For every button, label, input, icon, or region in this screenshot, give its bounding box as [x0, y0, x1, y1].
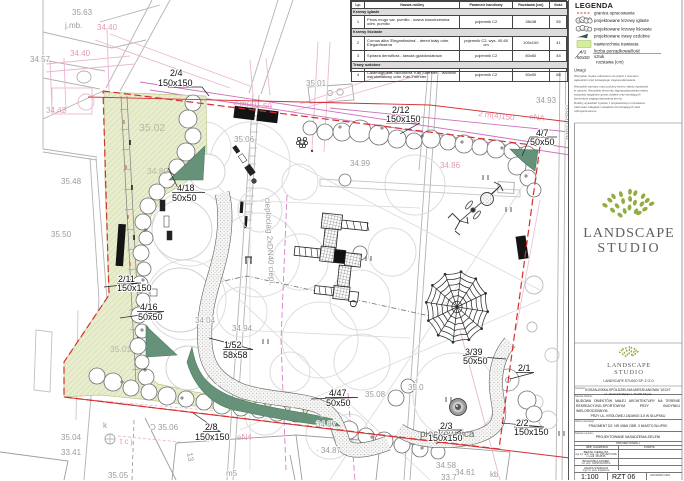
svg-text:33.41: 33.41 — [61, 448, 82, 457]
svg-text:2/4: 2/4 — [170, 68, 183, 78]
svg-text:uzbrojenia terenu.: uzbrojenia terenu. — [574, 109, 597, 113]
svg-text:Uwagi: Uwagi — [574, 68, 586, 73]
svg-text:projektowane krzewy iglaste: projektowane krzewy iglaste — [594, 18, 649, 23]
svg-text:Ɔ 35.06: Ɔ 35.06 — [150, 423, 179, 432]
svg-text:· 34.87: · 34.87 — [316, 446, 341, 455]
svg-text:2/3: 2/3 — [440, 421, 453, 431]
svg-text:35.63: 35.63 — [72, 8, 93, 17]
svg-text:35.01: 35.01 — [306, 79, 327, 88]
svg-text:50x50: 50x50 — [530, 137, 555, 147]
svg-text:50x50: 50x50 — [326, 398, 351, 408]
svg-text:34.40: 34.40 — [97, 23, 118, 32]
svg-text:projektowane krzewy liściaste: projektowane krzewy liściaste — [594, 26, 652, 31]
svg-text:50x50: 50x50 — [172, 193, 197, 203]
svg-text:sąsiednimi oraz istniejącego z: sąsiednimi oraz istniejącego zagospodaro… — [574, 78, 636, 82]
svg-text:34.89: 34.89 — [147, 166, 169, 176]
svg-text:35.50: 35.50 — [51, 230, 72, 239]
svg-text:j.mb.: j.mb. — [64, 21, 82, 30]
svg-text:34.57: 34.57 — [30, 55, 51, 64]
svg-text:35.06: 35.06 — [234, 135, 255, 144]
svg-text:1/52: 1/52 — [224, 340, 242, 350]
svg-text:50x50: 50x50 — [463, 356, 488, 366]
svg-text:35.08: 35.08 — [365, 390, 386, 399]
svg-text:projektowane trawy ozdobne: projektowane trawy ozdobne — [594, 34, 650, 39]
svg-text:t c j: t c j — [120, 437, 133, 446]
svg-text:34.42: 34.42 — [46, 106, 67, 115]
svg-text:4/47: 4/47 — [329, 388, 347, 398]
svg-text:150x150: 150x150 — [117, 283, 152, 293]
svg-text:elementów zagospodarowania ter: elementów zagospodarowania terenu. — [574, 97, 623, 101]
svg-text:35.48: 35.48 — [61, 177, 82, 186]
svg-text:34.99: 34.99 — [350, 159, 371, 168]
svg-text:34.61: 34.61 — [455, 468, 476, 477]
svg-text:eN4: eN4 — [237, 433, 252, 442]
svg-text:150x150: 150x150 — [195, 432, 230, 442]
svg-text:4/18: 4/18 — [177, 183, 195, 193]
svg-text:34.40: 34.40 — [70, 49, 91, 58]
svg-text:150x150: 150x150 — [386, 114, 421, 124]
svg-text:58x58: 58x58 — [223, 350, 248, 360]
svg-text:34.93: 34.93 — [536, 96, 557, 105]
svg-text:150x150: 150x150 — [514, 427, 549, 437]
svg-text:150x150: 150x150 — [158, 78, 193, 88]
svg-text:sztuk: sztuk — [594, 54, 605, 59]
svg-text:rozstawa (cm): rozstawa (cm) — [596, 59, 624, 64]
svg-text:granica opracowania: granica opracowania — [594, 11, 635, 16]
svg-text:35.01: 35.01 — [110, 344, 132, 354]
svg-text:50x50: 50x50 — [138, 312, 163, 322]
svg-text:35.0: 35.0 — [408, 383, 424, 392]
svg-text:34.58: 34.58 — [436, 461, 457, 470]
svg-text:50x50: 50x50 — [577, 55, 590, 60]
svg-text:35.05: 35.05 — [108, 471, 129, 480]
svg-text:2/8: 2/8 — [205, 422, 218, 432]
svg-text:33.7: 33.7 — [441, 473, 457, 480]
svg-text:2/1: 2/1 — [518, 363, 531, 373]
svg-text:34.04: 34.04 — [195, 316, 216, 325]
svg-text:m5: m5 — [226, 469, 238, 478]
svg-text:kb: kb — [490, 470, 499, 479]
svg-text:35.02: 35.02 — [139, 122, 165, 134]
svg-text:34.86: 34.86 — [440, 161, 461, 170]
svg-text:4/16: 4/16 — [140, 302, 158, 312]
svg-text:35.04: 35.04 — [61, 433, 82, 442]
svg-text:liczba porządkowa/ilość: liczba porządkowa/ilość — [594, 49, 641, 54]
svg-text:34.94: 34.94 — [232, 324, 253, 333]
svg-text:nawierzchnia trawiasta: nawierzchnia trawiasta — [594, 42, 639, 47]
svg-text:150x150: 150x150 — [428, 433, 463, 443]
